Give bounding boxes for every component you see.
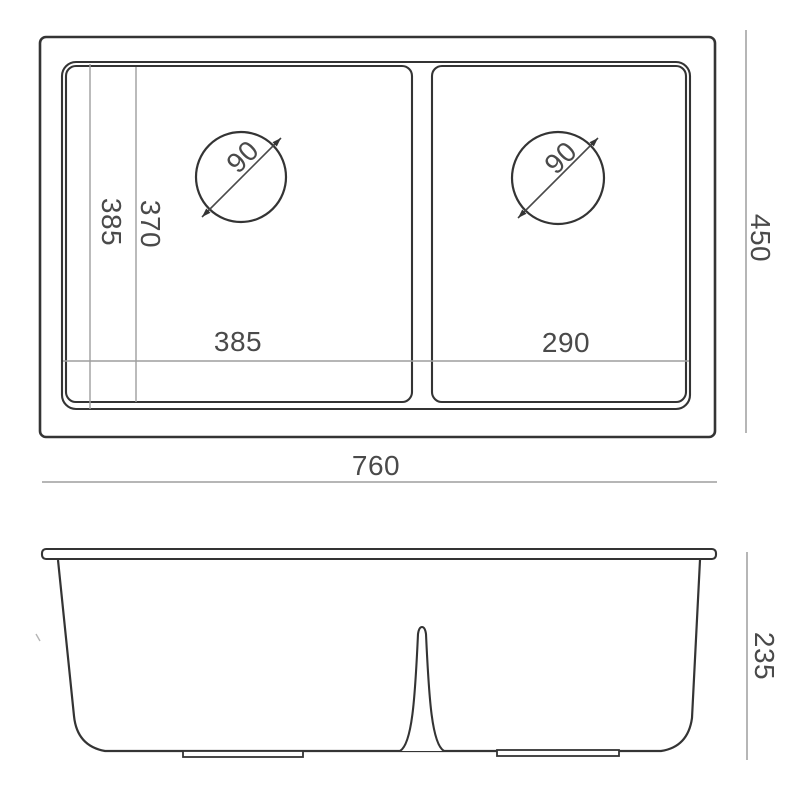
stray-mark (36, 634, 40, 641)
front-left-foot-pad (183, 751, 303, 757)
dim-label-bowl-inner-length: 370 (133, 182, 167, 266)
dim-label-overall-depth: 450 (743, 196, 777, 280)
dim-label-right-bowl-width: 290 (524, 326, 608, 360)
dim-label-overall-width: 760 (334, 449, 418, 483)
front-divider-ridge (400, 627, 444, 751)
dim-label-front-height: 235 (747, 614, 781, 698)
drawing-linework (0, 0, 800, 794)
dim-label-left-bowl-width: 385 (196, 325, 280, 359)
front-body-outline (58, 560, 700, 751)
front-rim-bar (42, 549, 716, 559)
sink-dimension-drawing: 385 370 385 290 760 450 235 90 90 (0, 0, 800, 794)
dim-label-inner-length: 385 (94, 180, 128, 264)
front-right-foot-pad (497, 750, 619, 756)
